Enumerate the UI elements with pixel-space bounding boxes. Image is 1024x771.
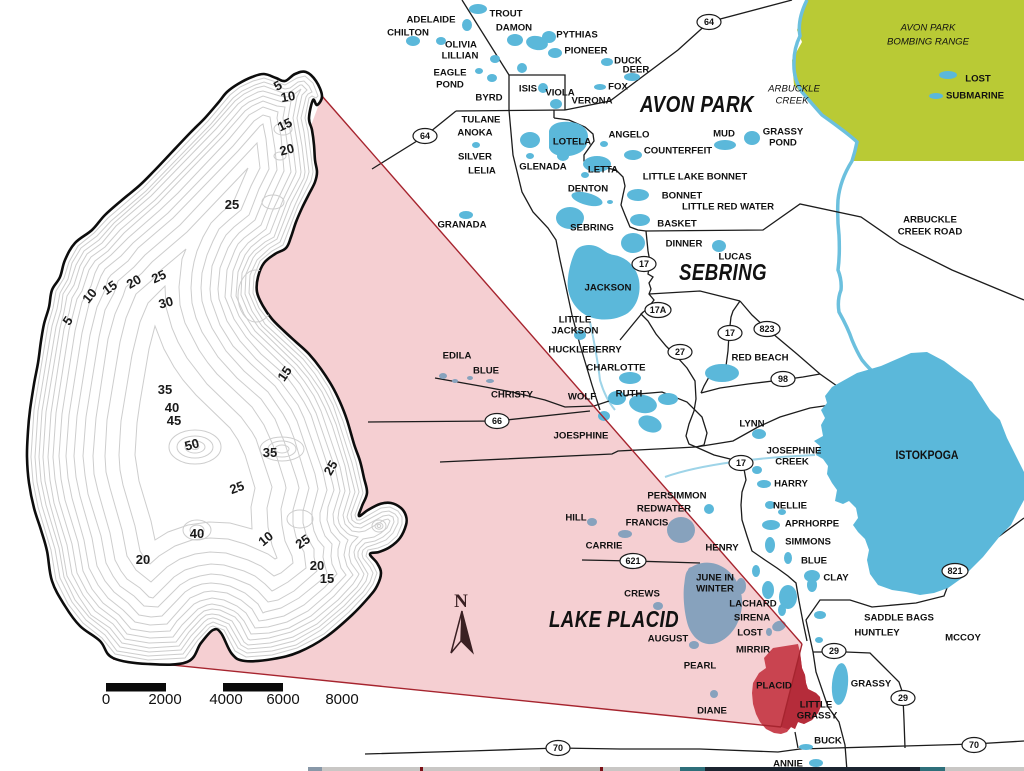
svg-text:LACHARD: LACHARD — [729, 599, 777, 610]
svg-text:CHILTON: CHILTON — [387, 28, 429, 39]
svg-text:VERONA: VERONA — [571, 96, 612, 107]
svg-text:DEER: DEER — [623, 65, 650, 76]
svg-text:RED BEACH: RED BEACH — [731, 353, 788, 364]
svg-text:EDILA: EDILA — [443, 351, 472, 362]
svg-text:0: 0 — [102, 691, 110, 708]
svg-text:POND: POND — [436, 80, 464, 91]
svg-text:LOTELA: LOTELA — [553, 137, 591, 148]
svg-text:REDWATER: REDWATER — [637, 504, 691, 515]
svg-text:AUGUST: AUGUST — [648, 634, 689, 645]
svg-text:15: 15 — [320, 571, 334, 586]
svg-text:64: 64 — [704, 17, 714, 27]
svg-text:ARBUCKLE: ARBUCKLE — [767, 84, 820, 95]
svg-text:SIRENA: SIRENA — [734, 613, 770, 624]
svg-text:45: 45 — [167, 413, 181, 428]
svg-text:LITTLE: LITTLE — [800, 700, 833, 711]
svg-text:AVON PARK: AVON PARK — [900, 23, 956, 34]
svg-text:17A: 17A — [650, 305, 667, 315]
svg-text:17: 17 — [736, 458, 746, 468]
svg-text:821: 821 — [947, 566, 962, 576]
svg-text:LOST: LOST — [737, 628, 763, 639]
svg-text:10: 10 — [279, 88, 296, 105]
svg-text:ISTOKPOGA: ISTOKPOGA — [896, 448, 959, 462]
svg-text:ANGELO: ANGELO — [608, 130, 650, 141]
svg-text:AVON PARK: AVON PARK — [639, 91, 755, 117]
svg-text:CLAY: CLAY — [823, 573, 849, 584]
svg-text:66: 66 — [492, 416, 502, 426]
svg-text:CREWS: CREWS — [624, 589, 660, 600]
svg-text:70: 70 — [553, 743, 563, 753]
svg-text:CHARLOTTE: CHARLOTTE — [586, 363, 646, 374]
svg-text:2000: 2000 — [148, 691, 181, 708]
svg-text:JACKSON: JACKSON — [552, 326, 599, 337]
svg-text:GRASSY: GRASSY — [797, 711, 838, 722]
svg-text:ANOKA: ANOKA — [457, 128, 492, 139]
svg-text:TULANE: TULANE — [462, 115, 502, 126]
svg-text:DAMON: DAMON — [496, 23, 532, 34]
svg-text:WOLF: WOLF — [568, 392, 596, 403]
svg-text:64: 64 — [420, 131, 430, 141]
svg-text:BONNET: BONNET — [662, 191, 703, 202]
svg-text:ADELAIDE: ADELAIDE — [406, 15, 456, 26]
svg-text:SILVER: SILVER — [458, 152, 492, 163]
svg-text:LITTLE RED WATER: LITTLE RED WATER — [682, 202, 774, 213]
svg-text:JACKSON: JACKSON — [585, 283, 632, 294]
svg-text:LILLIAN: LILLIAN — [442, 51, 479, 62]
svg-text:CREEK: CREEK — [775, 96, 809, 107]
svg-text:98: 98 — [778, 374, 788, 384]
svg-text:BUCK: BUCK — [814, 736, 842, 747]
svg-text:LELIA: LELIA — [468, 166, 496, 177]
svg-text:621: 621 — [625, 556, 640, 566]
svg-text:SIMMONS: SIMMONS — [785, 537, 831, 548]
svg-text:GRANADA: GRANADA — [437, 220, 486, 231]
svg-text:BYRD: BYRD — [475, 93, 502, 104]
svg-text:35: 35 — [263, 445, 277, 460]
svg-text:29: 29 — [898, 693, 908, 703]
svg-text:GLENADA: GLENADA — [519, 162, 567, 173]
svg-text:RUTH: RUTH — [616, 389, 643, 400]
svg-text:CARRIE: CARRIE — [586, 541, 623, 552]
svg-text:17: 17 — [725, 328, 735, 338]
svg-text:SADDLE BAGS: SADDLE BAGS — [864, 613, 934, 624]
svg-text:29: 29 — [829, 646, 839, 656]
svg-text:6000: 6000 — [266, 691, 299, 708]
svg-text:823: 823 — [759, 324, 774, 334]
svg-text:ARBUCKLE: ARBUCKLE — [903, 215, 957, 226]
svg-text:HUNTLEY: HUNTLEY — [854, 628, 900, 639]
svg-text:GRASSY: GRASSY — [763, 127, 804, 138]
svg-text:DENTON: DENTON — [568, 184, 608, 195]
svg-text:70: 70 — [969, 740, 979, 750]
svg-text:PEARL: PEARL — [684, 661, 717, 672]
svg-text:LYNN: LYNN — [739, 419, 764, 430]
svg-text:CHRISTY: CHRISTY — [491, 390, 534, 401]
svg-text:GRASSY: GRASSY — [851, 679, 892, 690]
svg-text:PIONEER: PIONEER — [564, 46, 607, 57]
svg-text:SUBMARINE: SUBMARINE — [946, 91, 1005, 102]
svg-text:LITTLE: LITTLE — [559, 315, 592, 326]
svg-text:N: N — [454, 591, 468, 612]
svg-text:BLUE: BLUE — [801, 556, 828, 567]
svg-text:EAGLE: EAGLE — [433, 68, 467, 79]
svg-text:TROUT: TROUT — [489, 9, 522, 20]
svg-text:WINTER: WINTER — [696, 584, 734, 595]
svg-text:HILL: HILL — [565, 513, 586, 524]
svg-text:35: 35 — [158, 382, 172, 397]
svg-text:POND: POND — [769, 138, 797, 149]
svg-text:SEBRING: SEBRING — [679, 259, 767, 285]
svg-text:PERSIMMON: PERSIMMON — [647, 491, 706, 502]
svg-text:MUD: MUD — [713, 129, 735, 140]
svg-text:BOMBING RANGE: BOMBING RANGE — [887, 37, 970, 48]
svg-text:HARRY: HARRY — [774, 479, 808, 490]
svg-text:PYTHIAS: PYTHIAS — [556, 30, 598, 41]
svg-text:DINNER: DINNER — [666, 239, 703, 250]
svg-text:NELLIE: NELLIE — [773, 501, 808, 512]
svg-text:MCCOY: MCCOY — [945, 633, 981, 644]
svg-text:LOST: LOST — [965, 74, 991, 85]
svg-text:BASKET: BASKET — [657, 219, 697, 230]
svg-text:40: 40 — [190, 526, 204, 541]
svg-text:LETTA: LETTA — [588, 165, 618, 176]
svg-text:DIANE: DIANE — [697, 706, 727, 717]
svg-text:CREEK ROAD: CREEK ROAD — [898, 227, 963, 238]
svg-text:20: 20 — [136, 552, 150, 567]
svg-text:JOSEPHINE: JOSEPHINE — [767, 446, 823, 457]
svg-text:FOX: FOX — [608, 82, 628, 93]
svg-text:17: 17 — [639, 259, 649, 269]
svg-text:HENRY: HENRY — [705, 543, 739, 554]
svg-text:4000: 4000 — [209, 691, 242, 708]
svg-text:SEBRING: SEBRING — [570, 223, 614, 234]
svg-text:JOESPHINE: JOESPHINE — [554, 431, 610, 442]
svg-text:MIRRIR: MIRRIR — [736, 645, 770, 656]
svg-text:JUNE IN: JUNE IN — [696, 573, 734, 584]
svg-text:ISIS: ISIS — [519, 84, 538, 95]
svg-text:CREEK: CREEK — [775, 457, 809, 468]
svg-text:LITTLE LAKE BONNET: LITTLE LAKE BONNET — [643, 172, 748, 183]
svg-text:PLACID: PLACID — [756, 681, 792, 692]
svg-text:8000: 8000 — [325, 691, 358, 708]
svg-text:COUNTERFEIT: COUNTERFEIT — [644, 146, 712, 157]
svg-text:27: 27 — [675, 347, 685, 357]
svg-text:FRANCIS: FRANCIS — [626, 518, 669, 529]
svg-text:APRHORPE: APRHORPE — [785, 519, 840, 530]
svg-text:VIOLA: VIOLA — [545, 88, 574, 99]
svg-text:BLUE: BLUE — [473, 366, 500, 377]
svg-text:HUCKLEBERRY: HUCKLEBERRY — [548, 345, 622, 356]
svg-text:OLIVIA: OLIVIA — [445, 40, 477, 51]
svg-text:25: 25 — [225, 197, 239, 212]
svg-text:LAKE PLACID: LAKE PLACID — [549, 606, 679, 632]
